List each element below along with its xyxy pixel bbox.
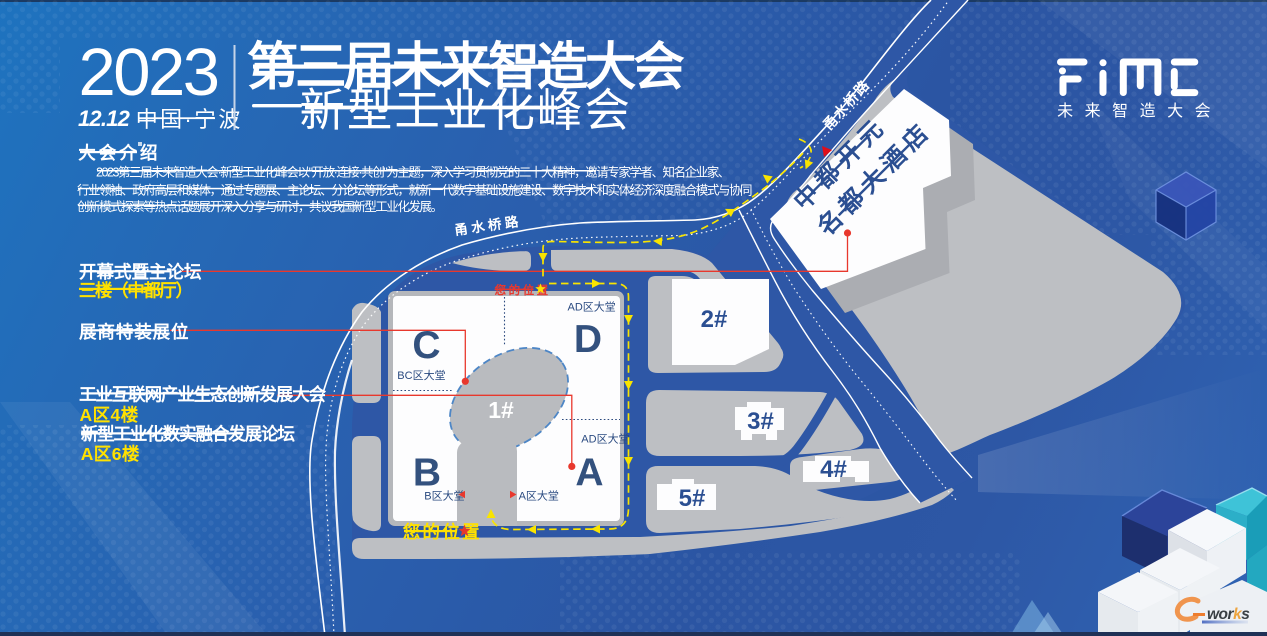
svg-text:开幕式暨主论坛: 开幕式暨主论坛 (79, 262, 202, 282)
svg-text:A区4楼: A区4楼 (80, 405, 139, 425)
svg-text:works: works (1207, 606, 1250, 623)
svg-text:2023: 2023 (79, 35, 218, 110)
svg-text:2#: 2# (701, 306, 728, 333)
svg-text:工业互联网产业生态创新发展大会: 工业互联网产业生态创新发展大会 (79, 385, 327, 405)
svg-text:新型工业化数实融合发展论坛: 新型工业化数实融合发展论坛 (81, 424, 296, 444)
svg-text:展商特装展位: 展商特装展位 (79, 322, 189, 342)
svg-text:3#: 3# (747, 408, 774, 435)
svg-text:新型工业化峰会: 新型工业化峰会 (299, 85, 632, 136)
svg-text:行业领袖、政府高层和媒体，通过专题展、主论坛、分论坛等形式，: 行业领袖、政府高层和媒体，通过专题展、主论坛、分论坛等形式，就新一代数字基础设施… (77, 182, 752, 197)
svg-text:12.12: 12.12 (78, 106, 131, 131)
svg-text:D: D (574, 318, 602, 361)
svg-text:未来智造大会: 未来智造大会 (1057, 102, 1222, 120)
svg-text:AD区大堂: AD区大堂 (581, 431, 629, 445)
svg-text:创新模式探索等热点话题展开深入分享与研讨，共议我国新型工业化: 创新模式探索等热点话题展开深入分享与研讨，共议我国新型工业化发展。 (77, 199, 442, 214)
svg-text:BC区大堂: BC区大堂 (397, 368, 445, 382)
svg-text:B: B (413, 452, 441, 495)
svg-text:AD区大堂: AD区大堂 (568, 300, 616, 314)
svg-text:三楼（中都厅）: 三楼（中都厅） (79, 280, 192, 300)
svg-text:4#: 4# (820, 456, 847, 483)
svg-text:2023第三届未来智造大会·新型工业化峰会以"开放·连接·共: 2023第三届未来智造大会·新型工业化峰会以"开放·连接·共创"为主题，深入学习… (96, 164, 729, 179)
svg-text:5#: 5# (679, 485, 706, 512)
svg-text:A区大堂: A区大堂 (519, 488, 559, 502)
svg-text:甬水桥路: 甬水桥路 (453, 213, 523, 238)
svg-text:A区6楼: A区6楼 (81, 444, 140, 464)
svg-text:A: A (575, 452, 603, 495)
svg-text:1#: 1# (488, 397, 514, 423)
svg-text:中国·宁波: 中国·宁波 (136, 107, 243, 132)
svg-text:B区大堂: B区大堂 (424, 488, 464, 502)
